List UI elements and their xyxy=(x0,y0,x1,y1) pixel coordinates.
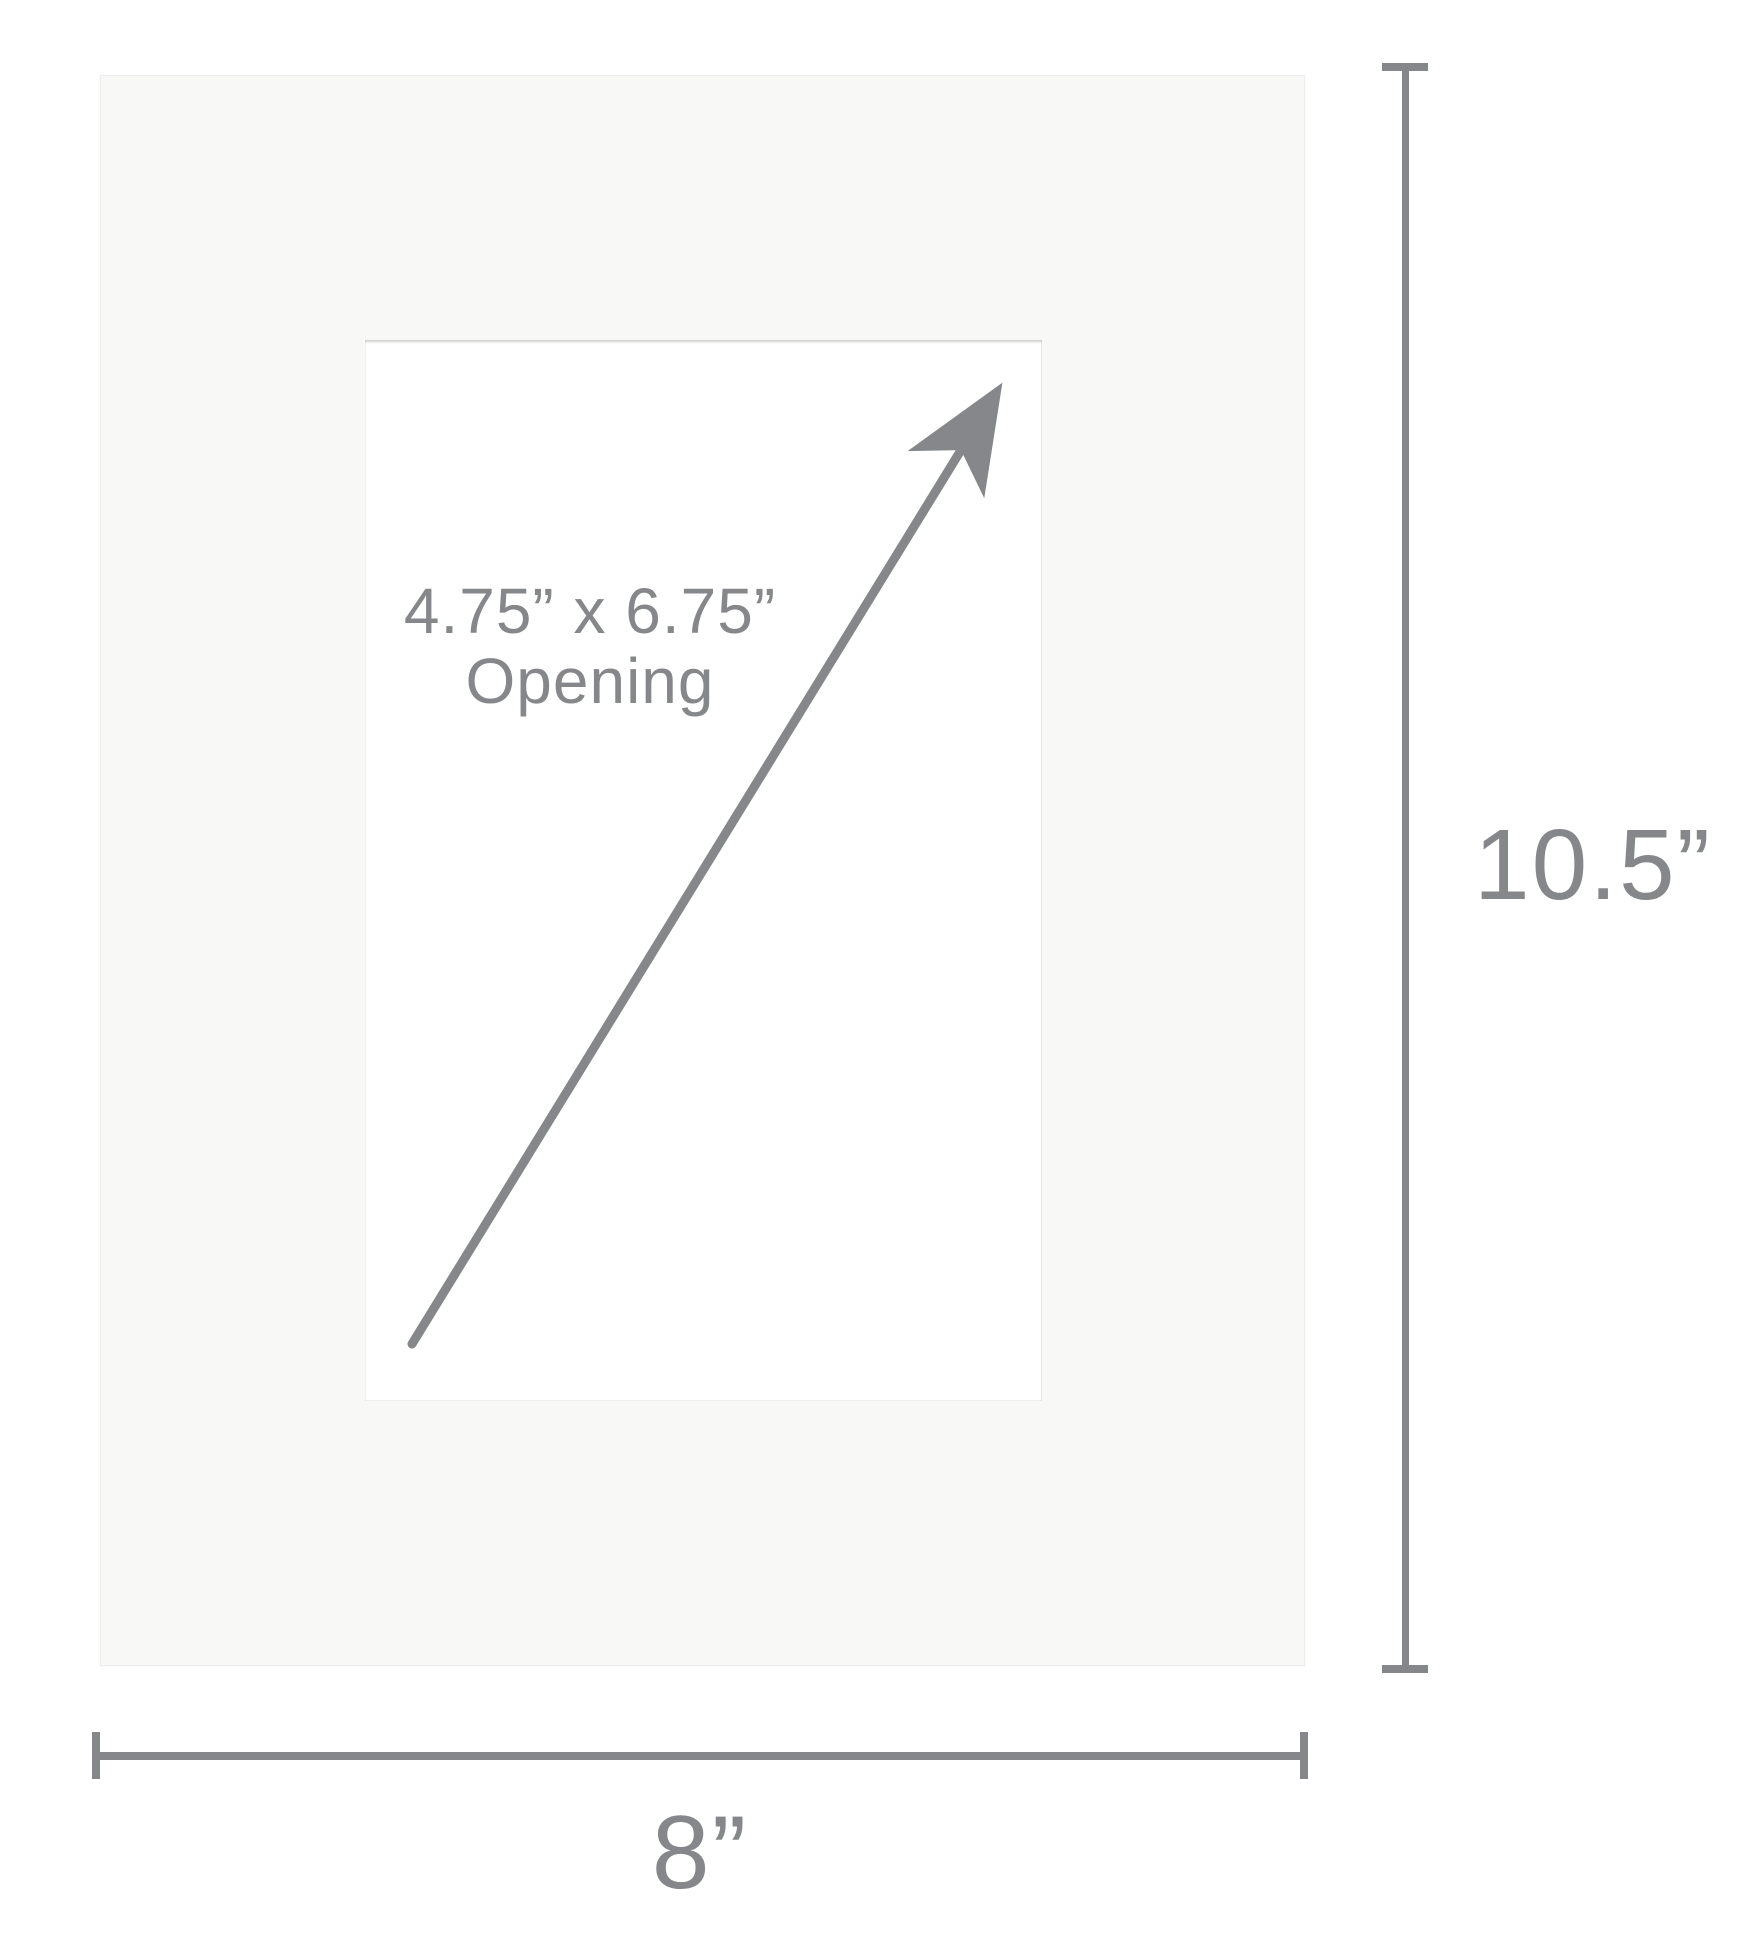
opening-word-text: Opening xyxy=(300,646,880,716)
mat-opening xyxy=(365,340,1042,1401)
height-dimension-line xyxy=(1382,63,1428,1673)
width-dimension-line xyxy=(92,1732,1308,1779)
product-diagram: 4.75” x 6.75” Opening 10.5” 8” xyxy=(0,0,1756,1942)
height-label: 10.5” xyxy=(1430,802,1756,928)
opening-size-label: 4.75” x 6.75” Opening xyxy=(300,576,880,716)
height-dimension-stem xyxy=(1402,63,1409,1673)
opening-size-text: 4.75” x 6.75” xyxy=(300,576,880,646)
width-dimension-right-cap xyxy=(1300,1732,1308,1779)
width-label: 8” xyxy=(540,1788,860,1918)
width-dimension-stem xyxy=(92,1752,1308,1760)
height-dimension-bottom-cap xyxy=(1382,1665,1428,1673)
